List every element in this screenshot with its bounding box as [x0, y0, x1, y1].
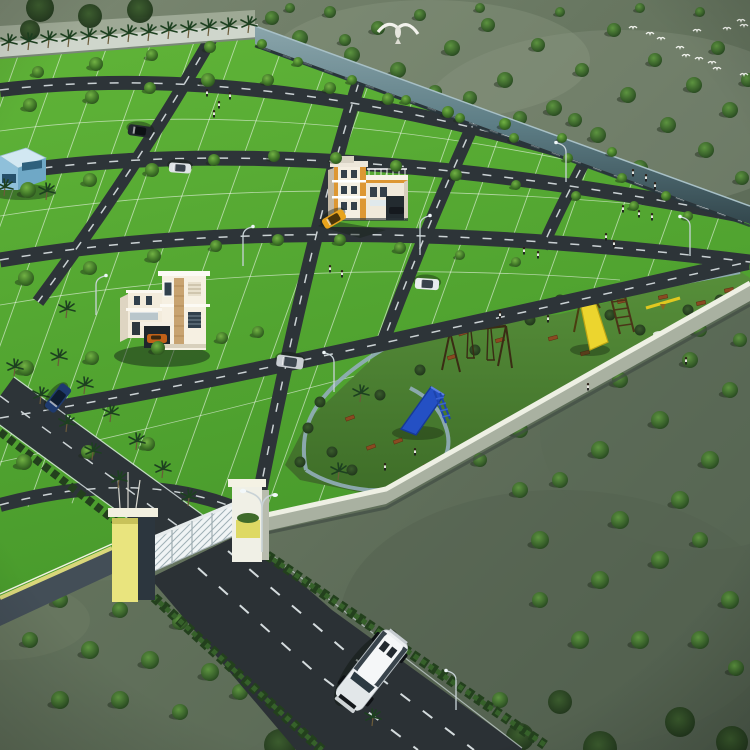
- render-stage: [0, 0, 750, 750]
- layout-render: [0, 0, 750, 750]
- vignette-overlay: [0, 0, 750, 750]
